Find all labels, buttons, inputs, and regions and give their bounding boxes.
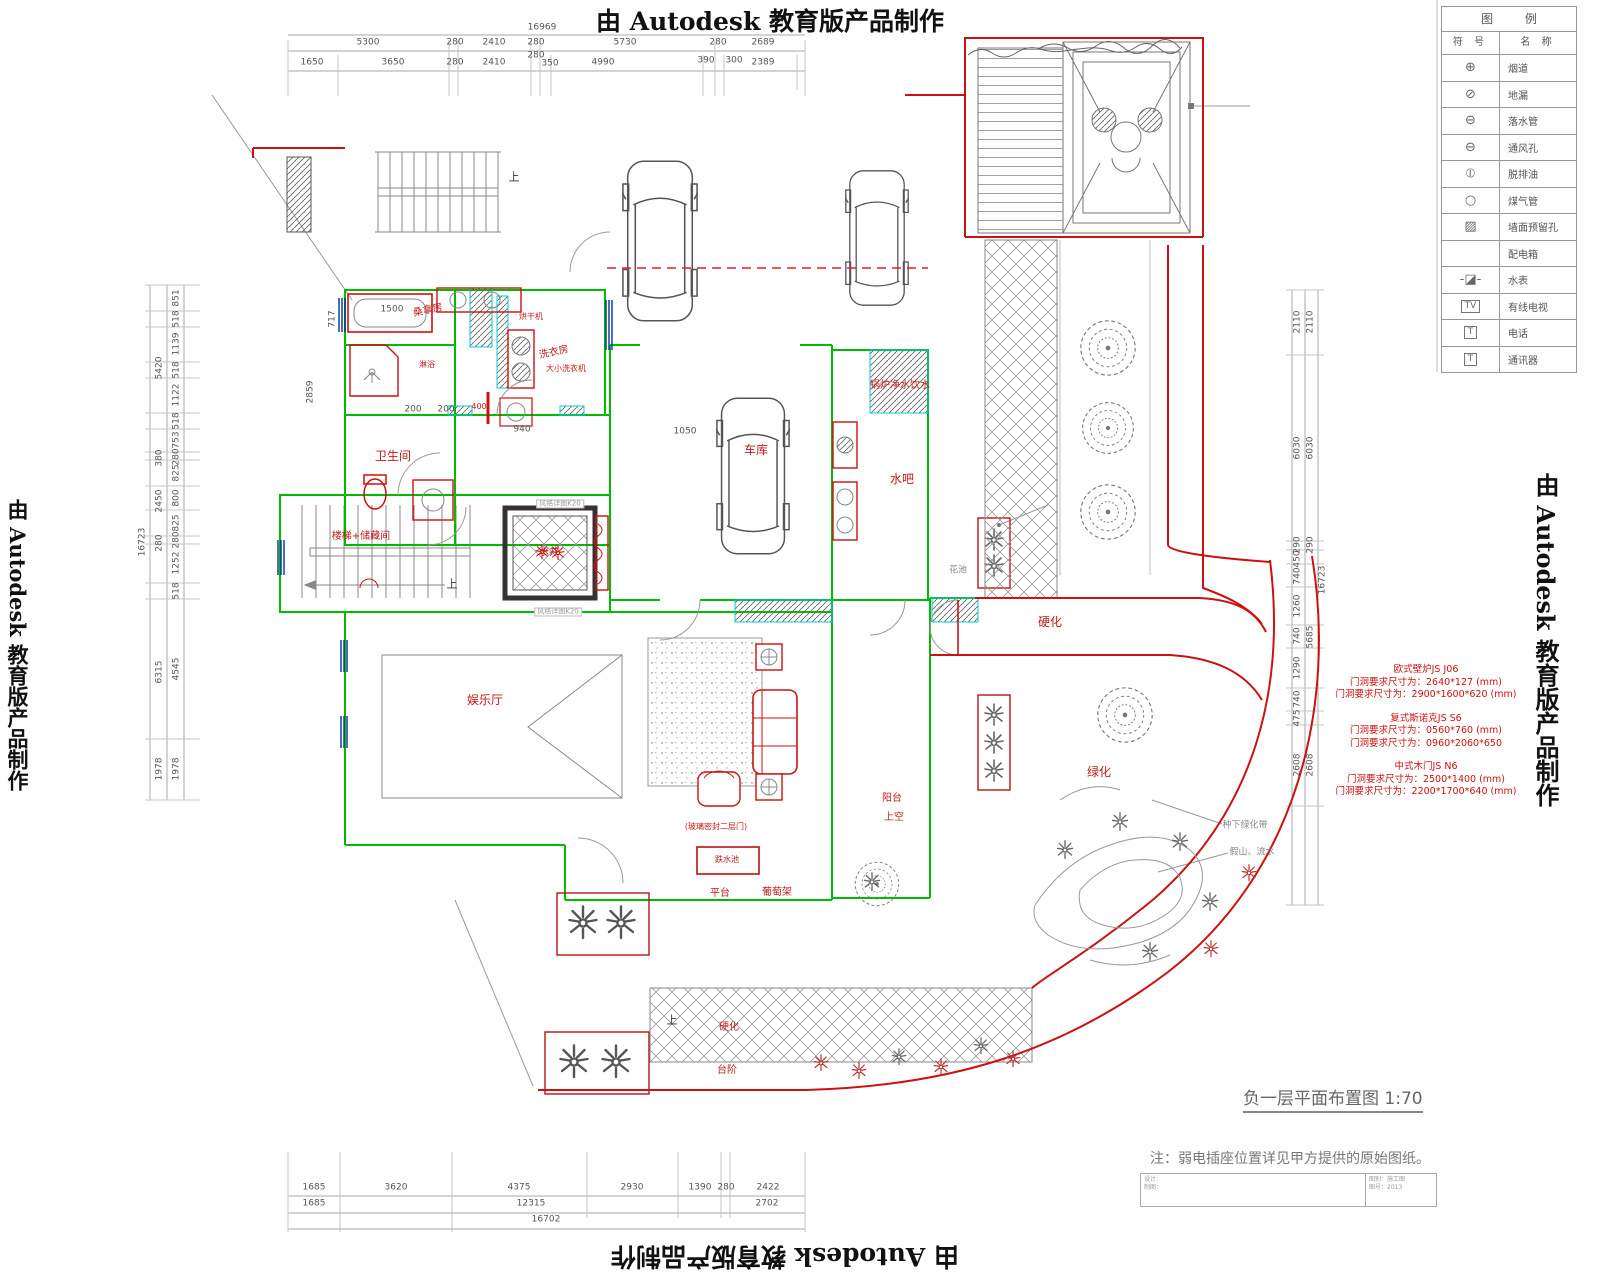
legend-row-4: ⊖通风孔 xyxy=(1442,135,1576,162)
plan-label: 2689 xyxy=(752,39,775,48)
legend-symbol: ⊕ xyxy=(1442,55,1500,81)
legend-symbol: -◪- xyxy=(1442,267,1500,293)
legend-name: 墙面预留孔 xyxy=(1500,219,1558,234)
plan-label: 5420 xyxy=(156,357,165,380)
plan-label: 3650 xyxy=(382,59,405,68)
legend-row-1: ⊕烟道 xyxy=(1442,55,1576,82)
legend-row-7: ▨墙面预留孔 xyxy=(1442,214,1576,241)
plan-label: 280 xyxy=(446,59,463,68)
watermark-left: 由 Autodesk 教育版产品制作 xyxy=(2,499,32,791)
stair-up-1: 上 xyxy=(509,172,520,183)
label-rockery-water: 假山、流水 xyxy=(1229,849,1274,858)
label-balcony: 阳台 xyxy=(882,794,902,804)
plan-label: 1260 xyxy=(1294,595,1303,618)
legend-row-5: ⦶脱排油 xyxy=(1442,161,1576,188)
legend-name: 煤气管 xyxy=(1500,193,1538,208)
legend-row-12: T通讯器 xyxy=(1442,347,1576,373)
plan-label: 2702 xyxy=(756,1200,779,1209)
plan-label: 3620 xyxy=(385,1184,408,1193)
legend-col-name: 名 称 xyxy=(1500,32,1576,54)
annotation-group-1: 欧式壁炉JS J06门洞要求尺寸为：2640*127 (mm)门洞要求尺寸为：2… xyxy=(1292,664,1560,702)
label-trellis: 葡萄架 xyxy=(762,888,792,898)
dim-bottom-overall: 16702 xyxy=(532,1216,561,1225)
plan-label: 280 xyxy=(173,448,182,465)
plan-label: 4545 xyxy=(173,658,182,681)
plan-label: 4375 xyxy=(508,1184,531,1193)
area-label-paving-2: 硬化 xyxy=(719,1023,739,1033)
plan-label: 380 xyxy=(156,449,165,466)
plan-label: 290 xyxy=(1307,536,1316,553)
plan-label: 2450 xyxy=(156,490,165,513)
room-label-garage: 车库 xyxy=(744,444,768,456)
plan-label: 280 xyxy=(156,534,165,551)
stair-wall xyxy=(287,157,311,232)
plan-label: 5730 xyxy=(614,39,637,48)
room-label-bathroom: 卫生间 xyxy=(375,450,411,462)
legend-name: 烟道 xyxy=(1500,60,1528,75)
legend-symbol: ⊖ xyxy=(1442,135,1500,161)
site-lines xyxy=(212,95,1250,1086)
legend-symbol: T xyxy=(1442,320,1500,346)
legend-row-3: ⊖落水管 xyxy=(1442,108,1576,135)
title-block: 设计： 制图： 图别：施工图 图号：2013 xyxy=(1140,1173,1437,1207)
legend-row-11: T电话 xyxy=(1442,320,1576,347)
legend-name: 地漏 xyxy=(1500,87,1528,102)
plan-label: 518 xyxy=(173,412,182,429)
walkway-right xyxy=(985,240,1057,598)
titleblock-left-2: 制图： xyxy=(1144,1184,1362,1192)
area-label-paving-1: 硬化 xyxy=(1038,616,1062,628)
plan-label: 2859 xyxy=(307,381,316,404)
legend-header: 图 例 xyxy=(1442,7,1576,32)
note-glass-door: (玻璃密封二层门) xyxy=(685,823,747,831)
legend-row-2: ⊘地漏 xyxy=(1442,82,1576,109)
plan-label: 280 xyxy=(717,1184,734,1193)
plan-label: 717 xyxy=(329,310,338,327)
drawing-title: 负一层平面布置图 1:70 xyxy=(1243,1084,1423,1113)
legend-symbol: ⊘ xyxy=(1442,82,1500,108)
legend-symbol: ○ xyxy=(1442,188,1500,214)
plan-label: 300 xyxy=(725,57,742,66)
dim-right-overall: 16723 xyxy=(1319,566,1328,595)
area-label-greenery: 绿化 xyxy=(1087,766,1111,778)
red-annotations: 欧式壁炉JS J06门洞要求尺寸为：2640*127 (mm)门洞要求尺寸为：2… xyxy=(1292,664,1560,810)
legend-name: 电话 xyxy=(1500,325,1528,340)
watermark-right: 由 Autodesk 教育版产品制作 xyxy=(1528,473,1563,807)
plan-label: 740 xyxy=(1294,627,1303,644)
plan-label: 1650 xyxy=(301,59,324,68)
legend-name: 有线电视 xyxy=(1500,299,1548,314)
room-label-washers: 大小洗衣机 xyxy=(546,365,586,373)
tag-detail-1: 风格详图K20 xyxy=(536,500,584,509)
legend-symbol: ⦶ xyxy=(1442,161,1500,187)
legend-name: 落水管 xyxy=(1500,113,1538,128)
plan-label: 390 xyxy=(697,57,714,66)
plan-label: 2410 xyxy=(483,39,506,48)
titleblock-right-1: 图别：施工图 xyxy=(1369,1176,1433,1184)
legend-row-8: 配电箱 xyxy=(1442,241,1576,268)
interior-stair xyxy=(302,505,470,598)
annotation-group-2: 复式斯诺克JS S6门洞要求尺寸为：0560*760 (mm)门洞要求尺寸为：0… xyxy=(1292,713,1560,751)
legend-row-10: TV有线电视 xyxy=(1442,294,1576,321)
room-label-stairs-storage: 楼梯+储藏间 xyxy=(332,532,390,542)
drawing-note: 注：弱电插座位置详见甲方提供的原始图纸。 xyxy=(1150,1148,1430,1168)
wood-deck xyxy=(978,48,1063,233)
room-label-boiler: 锅炉净水饮水 xyxy=(870,381,930,391)
plan-label: 350 xyxy=(541,60,558,69)
legend-table: 图 例 符 号 名 称 ⊕烟道⊘地漏⊖落水管⊖通风孔⦶脱排油○煤气管▨墙面预留孔… xyxy=(1441,6,1577,373)
cars xyxy=(622,161,909,553)
legend-name: 水表 xyxy=(1500,272,1528,287)
room-label-dryer: 烘干机 xyxy=(519,313,543,321)
plan-label: 6030 xyxy=(1307,437,1316,460)
plan-label: 940 xyxy=(513,426,530,435)
plan-label: 4990 xyxy=(592,59,615,68)
legend-name: 通讯器 xyxy=(1500,352,1538,367)
room-label-well: 水井 xyxy=(539,548,559,558)
plan-label: 518 xyxy=(173,361,182,378)
plan-label: 1252 xyxy=(173,552,182,575)
legend-symbol: TV xyxy=(1442,294,1500,320)
plan-label: 1978 xyxy=(156,758,165,781)
plan-label: 825 xyxy=(173,514,182,531)
label-open-above: 上空 xyxy=(884,813,904,823)
legend-name: 配电箱 xyxy=(1500,246,1538,261)
plan-label: 1978 xyxy=(173,758,182,781)
plan-label: 1139 xyxy=(173,333,182,356)
plan-label: 280 xyxy=(173,531,182,548)
plan-label: 280 xyxy=(446,39,463,48)
dim-top-overall: 16969 xyxy=(528,24,557,33)
plan-label: 280 xyxy=(527,39,544,48)
plan-label: 2930 xyxy=(621,1184,644,1193)
titleblock-right-2: 图号：2013 xyxy=(1369,1184,1433,1192)
tag-detail-2: 风格详图K20 xyxy=(534,608,582,617)
plan-label: 753 xyxy=(173,431,182,448)
plan-label: 518 xyxy=(173,582,182,599)
titleblock-left-1: 设计： xyxy=(1144,1176,1362,1184)
plan-label: 740 xyxy=(1294,567,1303,584)
plan-label: 2389 xyxy=(752,59,775,68)
room-label-water-bar: 水吧 xyxy=(890,473,914,485)
plan-label: 1500 xyxy=(381,306,404,315)
plan-label: 2422 xyxy=(757,1184,780,1193)
dim-left-overall: 16723 xyxy=(139,528,148,557)
plan-label: 1050 xyxy=(674,428,697,437)
plan-label: 800 xyxy=(173,489,182,506)
label-platform: 平台 xyxy=(710,889,730,899)
plan-label: 1122 xyxy=(173,384,182,407)
plan-label: 6315 xyxy=(156,661,165,684)
legend-symbol: ⊖ xyxy=(1442,108,1500,134)
legend-symbol xyxy=(1442,241,1500,267)
legend-symbol: ▨ xyxy=(1442,214,1500,240)
pavilion xyxy=(1063,42,1190,233)
plan-label: 450 xyxy=(1294,550,1303,567)
plan-label: 6030 xyxy=(1294,437,1303,460)
plan-label: 5300 xyxy=(357,39,380,48)
label-planter: 花池 xyxy=(949,567,967,576)
recreation-room xyxy=(382,638,797,806)
boiler-fixtures xyxy=(833,422,857,540)
cad-sheet: 1696953002802410280573028026891650365028… xyxy=(0,0,1600,1280)
legend-name: 脱排油 xyxy=(1500,166,1538,181)
legend-name: 通风孔 xyxy=(1500,140,1538,155)
plan-label: 12315 xyxy=(517,1200,546,1209)
plan-label: 1390 xyxy=(689,1184,712,1193)
plan-label: 200 xyxy=(404,406,421,415)
annotation-group-3: 中式木门JS N6门洞要求尺寸为：2500*1400 (mm)门洞要求尺寸为：2… xyxy=(1292,761,1560,799)
legend-row-6: ○煤气管 xyxy=(1442,188,1576,215)
plan-label: 851 xyxy=(173,289,182,306)
label-steps: 台阶 xyxy=(717,1066,737,1076)
plan-label: 2110 xyxy=(1294,311,1303,334)
plan-label: 5685 xyxy=(1307,626,1316,649)
plan-label: 825 xyxy=(173,464,182,481)
plan-label: 280 xyxy=(709,39,726,48)
exterior-stair xyxy=(375,152,501,232)
legend-row-9: -◪-水表 xyxy=(1442,267,1576,294)
stair-up-2: 上 xyxy=(447,579,458,590)
plan-label: 2410 xyxy=(483,59,506,68)
legend-col-symbol: 符 号 xyxy=(1442,32,1500,54)
room-label-shower: 淋浴 xyxy=(419,361,435,369)
stair-up-3: 上 xyxy=(667,1015,678,1026)
plan-label: 1685 xyxy=(303,1184,326,1193)
plan-label: 400 xyxy=(471,403,486,411)
plan-label: 200 xyxy=(437,406,454,415)
room-label-recreation: 娱乐厅 xyxy=(467,694,503,706)
plan-label: 1685 xyxy=(303,1200,326,1209)
label-water-feature: 跌水池 xyxy=(715,856,739,864)
watermark-top: 由 Autodesk 教育版产品制作 xyxy=(596,2,944,38)
watermark-bottom: 由 Autodesk 教育版产品制作 xyxy=(611,1240,959,1276)
plan-label: 2110 xyxy=(1307,311,1316,334)
legend-symbol: T xyxy=(1442,347,1500,373)
plan-label: 518 xyxy=(173,310,182,327)
label-planting-strip: 种下绿化带 xyxy=(1222,822,1267,831)
